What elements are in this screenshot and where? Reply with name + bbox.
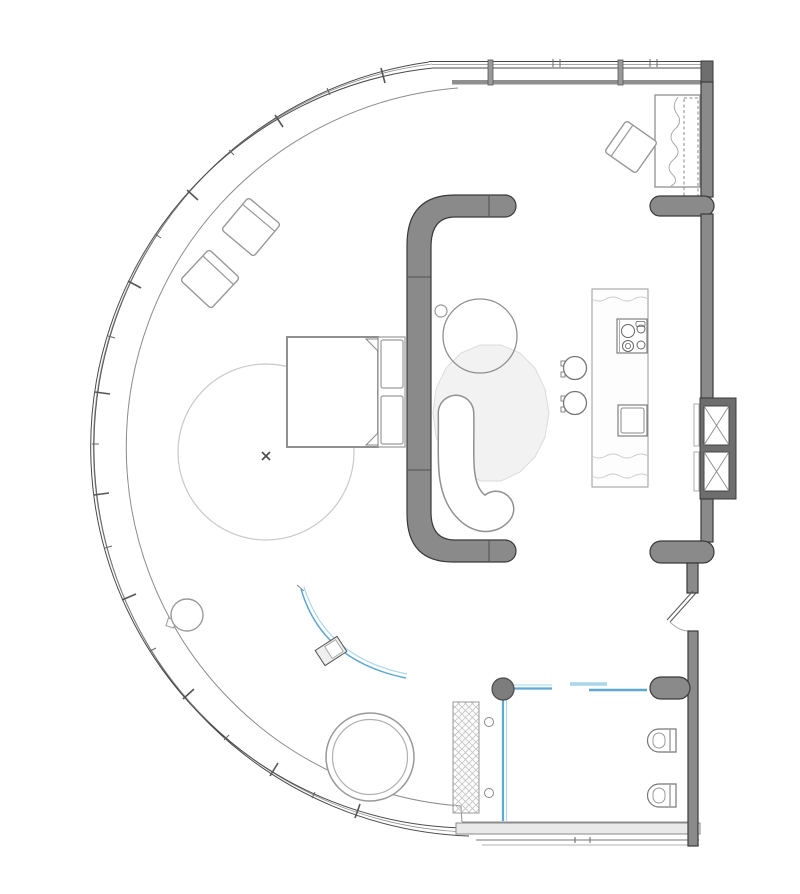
round-column [492, 678, 514, 700]
corner-block [701, 61, 713, 84]
desk [655, 95, 700, 196]
floor-lamp [166, 599, 203, 631]
bathroom [326, 702, 676, 813]
wall-stub [650, 541, 714, 563]
bar-stool [561, 392, 587, 415]
shaft-panel [694, 404, 699, 446]
floor-plan [0, 0, 800, 894]
bidet [648, 784, 677, 807]
shower-mat [453, 702, 479, 813]
entry-door [667, 591, 696, 631]
service-shafts [694, 398, 736, 499]
side-table [435, 305, 447, 317]
center-mark [262, 452, 270, 460]
curtain-track [297, 585, 407, 678]
glass-partition [503, 685, 552, 821]
bathtub [326, 713, 414, 801]
lounge-chair [221, 197, 280, 256]
floor-drain [485, 789, 494, 798]
shaft-panel [694, 452, 699, 491]
lounge-chair [180, 249, 239, 308]
desk-chair [605, 121, 658, 174]
bottom-wall [456, 823, 700, 834]
wall-stub [650, 677, 690, 699]
top-glazing-ticks [553, 59, 657, 67]
kitchen-island [592, 289, 648, 487]
kitchen-sink [618, 405, 647, 436]
cooktop [617, 319, 647, 353]
bar-stool [561, 357, 587, 380]
pillow [381, 396, 403, 444]
sliding-door [570, 684, 647, 690]
toilet [648, 729, 677, 752]
floor-plan-drawing [0, 0, 800, 894]
floor-drain [485, 718, 494, 727]
bed [287, 337, 405, 447]
pillow [381, 340, 403, 388]
top-window-wall [429, 59, 713, 85]
window-mullion [618, 60, 623, 85]
tv-unit [315, 636, 347, 665]
window-mullion [488, 60, 493, 85]
bottom-wall-band [456, 822, 700, 845]
wall-stub [650, 196, 714, 216]
